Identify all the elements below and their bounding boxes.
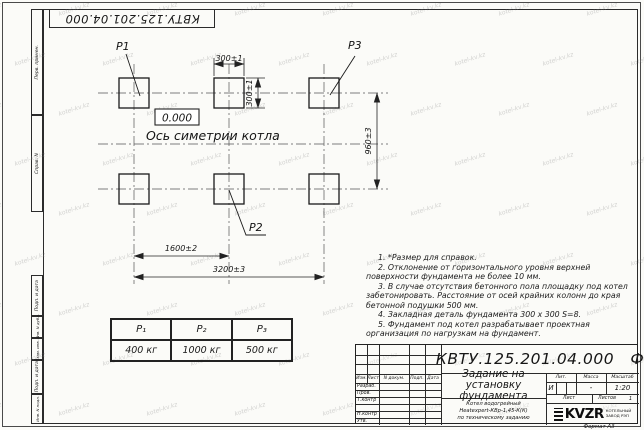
tb-sheet-label: Лист xyxy=(546,394,592,403)
tb-title: Задание на установку фундамента xyxy=(441,373,546,398)
tb-col-izm: Изм. xyxy=(356,374,367,383)
load-table-header-p1: Р₁ xyxy=(111,319,171,340)
tb-row-blank xyxy=(357,404,379,411)
tb-col-podp: Подп. xyxy=(409,374,425,383)
note-item: 4. Закладная деталь фундамента 300 x 300… xyxy=(366,310,640,320)
load-table-header-p3: Р₃ xyxy=(232,319,292,340)
dim-text-300h: 300±1 xyxy=(215,54,242,63)
load-table-value-p3: 500 кг xyxy=(232,340,292,361)
grid-line xyxy=(379,345,380,425)
tb-subtitle-line: Котел водогрейный xyxy=(466,401,520,408)
note-item: 2. Отклонение от горизонтального уровня … xyxy=(366,263,640,282)
title-block: Изм. Лист N докум. Подп. Дата Разраб. Пр… xyxy=(355,344,638,424)
dim-text-960: 960±3 xyxy=(364,127,373,154)
load-point-label-p3: Р3 xyxy=(348,39,362,52)
tb-row-utv: Утв. xyxy=(357,418,379,425)
tb-lit-value: И xyxy=(546,382,556,394)
format-label: Формат А3 xyxy=(560,424,638,430)
elevation-value: 0.000 xyxy=(162,113,192,125)
leader-lines xyxy=(126,54,355,235)
dim-text-1600: 1600±2 xyxy=(165,244,197,253)
tb-mass-value: - xyxy=(576,382,606,394)
tb-row-tkontr: Т.контр xyxy=(357,397,379,404)
grid-line xyxy=(356,355,441,356)
load-point-label-p2: Р2 xyxy=(249,221,263,234)
load-table: Р₁ Р₂ Р₃ 400 кг 1000 кг 500 кг xyxy=(110,318,293,362)
tb-subtitle-line: Heatexpert-КВр-1,45-К(К) xyxy=(459,408,527,415)
note-item: 5. Фундамент под котел разрабатывает про… xyxy=(366,320,640,339)
kvzr-logo: KVZR КОТЕЛЬНЫЙ ЗАВОД РЭП xyxy=(546,403,639,425)
load-table-value-p1: 400 кг xyxy=(111,340,171,361)
tb-scale-header: Масштаб xyxy=(606,373,639,382)
note-item: 3. В случае отсутствия бетонного пола пл… xyxy=(366,282,640,311)
tb-subtitle-line: по техническому заданию xyxy=(457,415,529,422)
tb-col-list: Лист xyxy=(367,374,379,383)
tb-scale-value: 1:20 xyxy=(606,382,639,394)
grid-line xyxy=(566,382,567,394)
tb-col-ndok: N докум. xyxy=(379,374,409,383)
tb-lit-header: Лит. xyxy=(546,373,576,382)
note-item: 1. *Размер для справок. xyxy=(366,253,640,263)
leader-p3 xyxy=(330,56,355,95)
load-point-label-p1: Р1 xyxy=(116,40,130,53)
kvzr-caption-line: ЗАВОД РЭП xyxy=(606,414,632,419)
leader-p1 xyxy=(126,54,140,96)
notes-block: 1. *Размер для справок. 2. Отклонение от… xyxy=(366,253,640,339)
tb-sheets-label: Листов xyxy=(592,394,622,403)
tb-row-prov: Пров. xyxy=(357,390,379,397)
grid-line xyxy=(425,345,426,425)
tb-row-nkontr: Н.контр xyxy=(357,411,379,418)
dim-text-3200: 3200±3 xyxy=(213,265,245,274)
grid-line xyxy=(356,364,441,365)
symmetry-axis-label: Ось симетрии котла xyxy=(146,128,280,143)
tb-col-data: Дата xyxy=(425,374,441,383)
kvzr-logo-text: KVZR xyxy=(565,406,604,422)
dim-text-300v: 300±1 xyxy=(245,79,254,106)
tb-subtitle: Котел водогрейный Heatexpert-КВр-1,45-К(… xyxy=(441,398,546,425)
kvzr-logo-caption: КОТЕЛЬНЫЙ ЗАВОД РЭП xyxy=(606,409,632,418)
load-table-value-p2: 1000 кг xyxy=(171,340,231,361)
tb-sheets-value: 1 xyxy=(622,394,639,403)
grid-line xyxy=(556,382,557,394)
tb-row-razrab: Разраб. xyxy=(357,383,379,390)
drawing-sheet: kotel-kv.kzkotel-kv.kzkotel-kv.kzkotel-k… xyxy=(0,0,644,430)
tb-mass-header: Масса xyxy=(576,373,606,382)
load-table-header-p2: Р₂ xyxy=(171,319,231,340)
kvzr-logo-icon xyxy=(554,408,563,421)
grid-line xyxy=(409,345,410,425)
